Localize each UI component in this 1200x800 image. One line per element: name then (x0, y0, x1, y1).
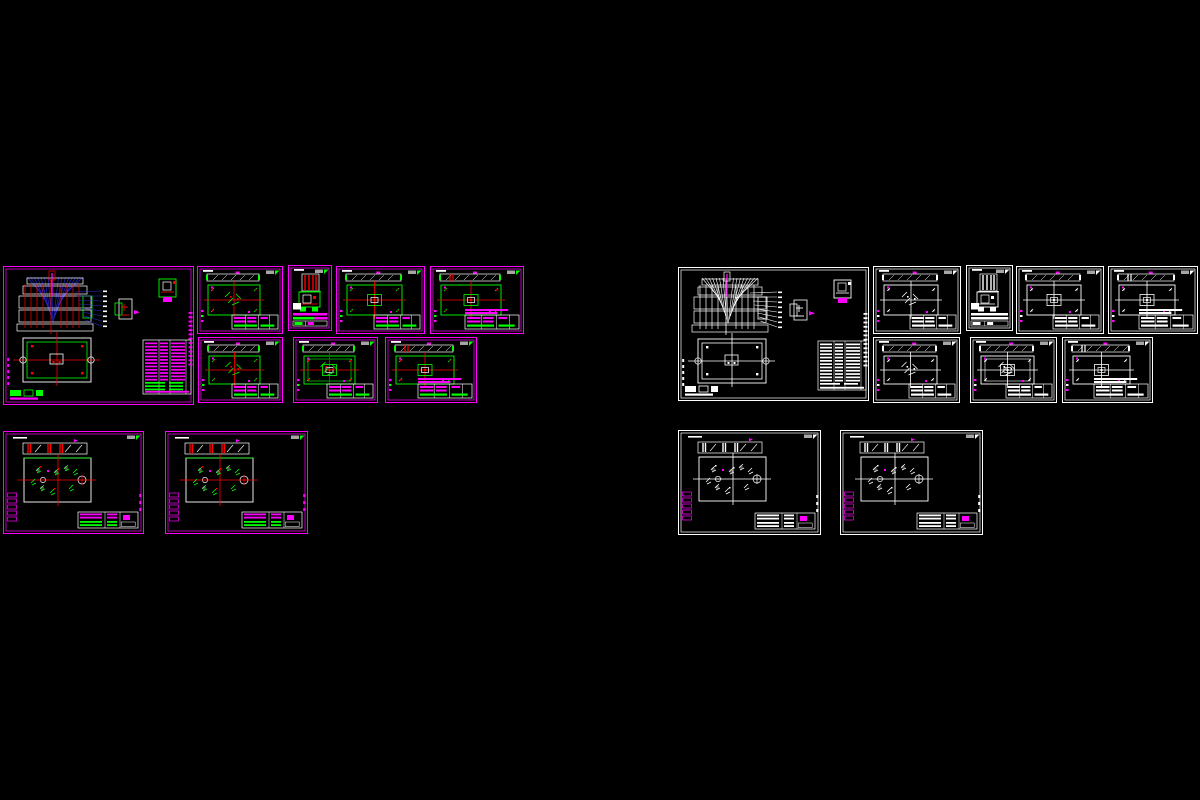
section-strip (23, 439, 87, 454)
fold-mark (342, 270, 352, 272)
sheet-left-part-4[interactable] (198, 337, 283, 403)
margin-ticks (1112, 310, 1115, 322)
margin-ticks (297, 379, 300, 391)
sheet-border (166, 432, 308, 534)
fold-mark (13, 437, 27, 439)
title-block (1053, 315, 1099, 329)
assembly-section-view (692, 272, 768, 335)
sheet-left-part-narrow[interactable] (288, 265, 332, 331)
plate-plan-view (180, 454, 258, 506)
sheet-right-part-5[interactable] (970, 337, 1057, 403)
margin-ticks (816, 495, 818, 512)
sheet-left-assembly[interactable] (3, 266, 194, 405)
sheet-left-part-5[interactable] (293, 337, 378, 403)
section-strip (302, 343, 355, 353)
margin-ticks (1066, 379, 1069, 391)
scale-label (1040, 342, 1054, 347)
detail-view-2 (159, 279, 176, 302)
scale-label (1181, 271, 1195, 276)
title-block (418, 378, 472, 398)
sheet-right-part-1[interactable] (873, 266, 961, 334)
fold-mark (1022, 270, 1032, 272)
plate-plan-view (18, 454, 96, 506)
sheet-left-part-2[interactable] (336, 266, 425, 334)
sheet-drawing-part (873, 337, 960, 403)
plate-plan-view (855, 453, 933, 505)
annotation-cluster (999, 362, 1015, 375)
detail-view-2 (834, 280, 851, 303)
title-block (465, 309, 519, 329)
scale-label (291, 436, 305, 441)
sheet-drawing-part (293, 337, 378, 403)
margin-ticks (877, 379, 880, 391)
margin-ticks (877, 310, 880, 322)
title-block (374, 315, 420, 329)
part-view (293, 292, 320, 312)
scale-label (460, 342, 474, 347)
fold-mark (391, 341, 401, 343)
sheet-drawing-part (1062, 337, 1153, 403)
annotation-cluster (902, 292, 918, 305)
hatched-view (300, 274, 321, 292)
sheet-border (4, 432, 144, 534)
part-plan-view (1023, 281, 1085, 319)
scale-label (966, 435, 980, 440)
fold-mark (1068, 341, 1078, 343)
fold-mark (972, 269, 982, 271)
sheet-right-part-2[interactable] (1016, 266, 1104, 334)
sheet-left-plate-2[interactable] (165, 431, 308, 534)
bom-table (143, 340, 191, 394)
scale-label (1136, 342, 1150, 347)
section-strip (207, 343, 260, 353)
revision-stack (845, 492, 854, 520)
section-strip (882, 272, 938, 282)
section-strip (1071, 343, 1130, 353)
sheet-left-part-3[interactable] (430, 266, 524, 334)
sheet-drawing-part (385, 337, 477, 403)
sheet-drawing-narrow (966, 265, 1013, 331)
scale-label (804, 435, 818, 440)
title-block (1006, 384, 1052, 398)
section-strip (206, 272, 260, 282)
sheet-drawing-plate (678, 430, 821, 535)
sheet-drawing-part (198, 337, 283, 403)
cad-canvas[interactable] (0, 0, 1200, 800)
margin-ticks (978, 495, 980, 512)
fold-mark (976, 341, 986, 343)
title-block (78, 512, 138, 528)
sheet-border (841, 431, 983, 535)
section-strip (394, 343, 454, 353)
revision-stack (683, 492, 692, 520)
sheet-right-part-4[interactable] (873, 337, 960, 403)
title-block (1094, 378, 1148, 398)
margin-ticks (340, 310, 343, 322)
fold-mark (688, 436, 702, 438)
hatched-view (978, 274, 999, 292)
title-block (755, 513, 815, 529)
margin-ticks (201, 310, 204, 322)
margin-ticks (303, 494, 305, 511)
sheet-drawing-part (1108, 266, 1198, 334)
assembly-section-view (17, 271, 93, 334)
scale-label (266, 271, 280, 276)
part-plan-view (343, 281, 406, 319)
scale-label (507, 271, 521, 276)
sheet-drawing-part (970, 337, 1057, 403)
part-plan-view (977, 352, 1038, 388)
sheet-drawing-plate (165, 431, 308, 534)
sheet-left-plate-1[interactable] (3, 431, 144, 534)
scale-label (944, 271, 958, 276)
sheet-border (4, 267, 194, 405)
sheet-drawing-part (197, 266, 283, 334)
margin-ticks (974, 379, 977, 391)
sheet-drawing-assembly (678, 267, 869, 401)
scale-label (943, 342, 957, 347)
scale-label (266, 342, 280, 347)
fold-mark (299, 341, 309, 343)
scale-label (361, 342, 375, 347)
fold-mark (203, 270, 213, 272)
section-strip (1025, 272, 1081, 282)
title-block (1139, 309, 1193, 329)
title-block (909, 384, 955, 398)
title-strip (293, 313, 328, 326)
revision-stack (170, 493, 179, 521)
fold-mark (436, 270, 446, 272)
sheet-left-part-6[interactable] (385, 337, 477, 403)
sheet-drawing-part (1016, 266, 1104, 334)
fold-mark (850, 436, 864, 438)
title-block (232, 315, 278, 329)
part-plan-view (300, 352, 359, 388)
revision-stack (8, 493, 17, 521)
sheet-right-plate-1[interactable] (678, 430, 821, 535)
fold-mark (879, 270, 889, 272)
sheet-drawing-assembly (3, 266, 194, 405)
title-block (242, 512, 302, 528)
scale-label (1087, 271, 1101, 276)
fold-mark (294, 269, 304, 271)
revision-strip (682, 313, 867, 386)
section-strip (1117, 272, 1175, 282)
annotation-cluster (902, 362, 918, 375)
part-view (971, 292, 998, 312)
detail-view-1 (790, 300, 815, 320)
sheet-border (679, 431, 821, 535)
sheet-right-part-6[interactable] (1062, 337, 1153, 403)
annotation-cluster (225, 292, 241, 305)
sheet-drawing-narrow (288, 265, 332, 331)
sheet-right-part-narrow[interactable] (966, 265, 1013, 331)
sheet-drawing-part (336, 266, 425, 334)
fold-mark (1114, 270, 1124, 272)
title-block (327, 384, 373, 398)
section-strip (185, 439, 249, 454)
sheet-right-plate-2[interactable] (840, 430, 983, 535)
sheet-right-part-3[interactable] (1108, 266, 1198, 334)
margin-ticks (139, 494, 141, 511)
part-plan-view (880, 281, 942, 319)
revision-strip (7, 312, 192, 385)
section-strip (860, 438, 924, 453)
scale-label (127, 436, 141, 441)
margin-ticks (1020, 310, 1023, 322)
sheet-drawing-part (873, 266, 961, 334)
title-blocks-bottom (10, 390, 43, 400)
plan-view (688, 333, 775, 387)
plate-plan-view (693, 453, 771, 505)
fold-mark (204, 341, 214, 343)
section-strip (698, 438, 762, 453)
section-strip (882, 343, 937, 353)
margin-ticks (202, 379, 205, 391)
title-block (232, 384, 278, 398)
sheet-drawing-part (430, 266, 524, 334)
margin-ticks (434, 310, 437, 322)
bom-table (818, 341, 866, 390)
annotation-cluster (226, 362, 242, 375)
part-plan-view (204, 281, 264, 319)
sheet-drawing-plate (840, 430, 983, 535)
title-blocks-bottom (685, 386, 718, 396)
section-strip (439, 272, 501, 282)
scale-label (315, 270, 329, 275)
title-block (910, 315, 956, 329)
margin-ticks (389, 379, 392, 391)
detail-view-1 (115, 299, 140, 319)
section-strip (979, 343, 1034, 353)
scale-label (996, 270, 1010, 275)
fold-mark (175, 437, 189, 439)
sheet-right-assembly[interactable] (678, 267, 869, 401)
plan-view (13, 332, 100, 386)
sheet-drawing-plate (3, 431, 144, 534)
title-block (917, 513, 977, 529)
part-plan-view (205, 352, 264, 388)
part-plan-view (880, 352, 941, 388)
sheet-left-part-1[interactable] (197, 266, 283, 334)
title-strip (971, 313, 1008, 326)
scale-label (408, 271, 422, 276)
fold-mark (879, 341, 889, 343)
section-strip (345, 272, 402, 282)
